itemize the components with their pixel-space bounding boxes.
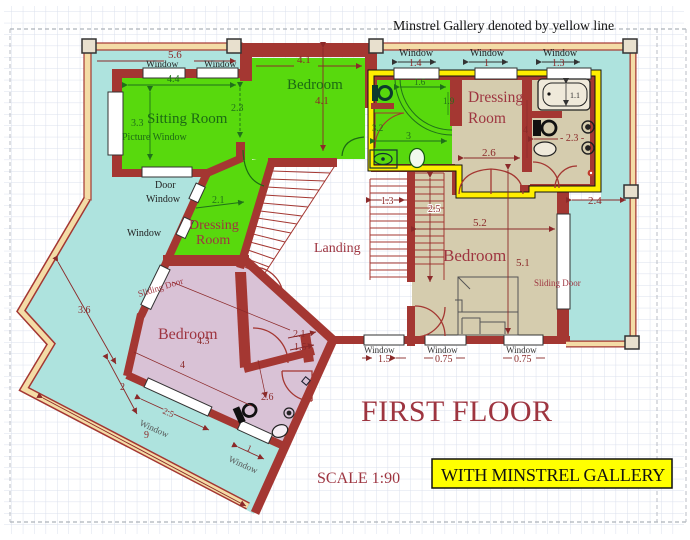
svg-text:1: 1 (484, 58, 489, 69)
svg-text:4.1: 4.1 (297, 54, 311, 66)
svg-text:Sliding Door: Sliding Door (534, 278, 581, 288)
svg-text:Minstrel Gallery denoted by ye: Minstrel Gallery denoted by yellow line (393, 18, 614, 33)
svg-text:1.3: 1.3 (552, 58, 565, 69)
svg-text:Window: Window (506, 345, 537, 355)
svg-text:0.75: 0.75 (514, 354, 532, 365)
svg-text:Window: Window (427, 345, 458, 355)
svg-text:Bedroom: Bedroom (443, 246, 506, 265)
svg-text:Picture Window: Picture Window (122, 132, 187, 143)
svg-text:- 2.3 -: - 2.3 - (560, 133, 584, 144)
svg-text:2: 2 (120, 382, 125, 393)
svg-text:1.9: 1.9 (443, 96, 455, 106)
svg-text:2.5: 2.5 (428, 204, 441, 215)
svg-text:2.1: 2.1 (293, 329, 306, 340)
svg-text:5.2: 5.2 (473, 217, 487, 229)
svg-text:WITH MINSTREL GALLERY: WITH MINSTREL GALLERY (441, 465, 665, 485)
svg-text:3: 3 (406, 131, 411, 142)
svg-text:1.1: 1.1 (570, 91, 580, 100)
svg-text:Bedroom: Bedroom (287, 77, 343, 93)
svg-text:Window: Window (364, 345, 395, 355)
svg-text:Window: Window (146, 194, 181, 205)
svg-text:FIRST FLOOR: FIRST FLOOR (361, 395, 552, 428)
svg-text:Dressing: Dressing (468, 89, 523, 106)
svg-text:2.6: 2.6 (261, 392, 274, 403)
svg-text:Door: Door (155, 180, 176, 191)
svg-text:0.75: 0.75 (435, 354, 453, 365)
svg-text:2.6: 2.6 (482, 147, 496, 159)
svg-text:2.1: 2.1 (212, 195, 225, 206)
svg-text:Room: Room (468, 110, 506, 127)
svg-text:2.4: 2.4 (588, 195, 602, 207)
svg-text:4: 4 (180, 360, 185, 371)
svg-text:1.3: 1.3 (381, 196, 394, 207)
svg-text:4.3: 4.3 (197, 336, 210, 347)
svg-text:2.3: 2.3 (231, 103, 244, 114)
svg-text:Sitting Room: Sitting Room (147, 111, 228, 127)
svg-text:Window: Window (146, 60, 178, 70)
svg-text:Landing: Landing (314, 241, 361, 256)
svg-text:3.6: 3.6 (78, 305, 91, 316)
svg-text:Room: Room (196, 233, 230, 248)
svg-text:5.1: 5.1 (516, 257, 530, 269)
svg-text:Dressing: Dressing (189, 218, 239, 233)
svg-text:3.3: 3.3 (131, 118, 144, 129)
svg-text:1.4: 1.4 (409, 58, 422, 69)
svg-text:SCALE 1:90: SCALE 1:90 (317, 470, 400, 487)
svg-text:4: 4 (523, 125, 528, 136)
svg-text:3.2: 3.2 (372, 123, 383, 133)
svg-text:4.1: 4.1 (315, 95, 329, 107)
svg-text:Window: Window (127, 228, 162, 239)
svg-text:1.5: 1.5 (378, 354, 391, 365)
svg-text:9: 9 (144, 430, 149, 441)
svg-text:1.5: 1.5 (294, 342, 307, 353)
svg-text:Window: Window (204, 60, 236, 70)
svg-text:4.4: 4.4 (167, 74, 180, 85)
svg-text:1.6: 1.6 (414, 77, 426, 87)
